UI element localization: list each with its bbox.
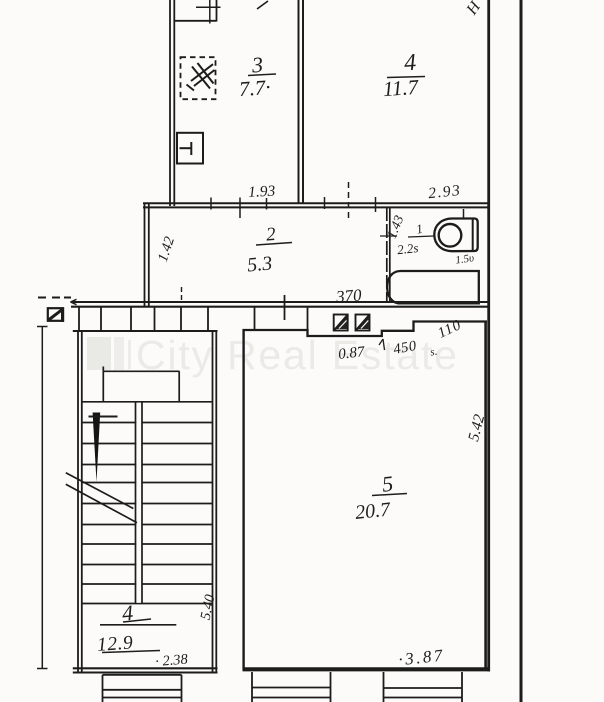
svg-text:11.7: 11.7	[382, 75, 420, 102]
svg-text:2.2ѕ: 2.2ѕ	[396, 240, 419, 257]
svg-text:2.93: 2.93	[427, 182, 462, 202]
svg-text:370: 370	[334, 285, 363, 306]
svg-text:1.93: 1.93	[248, 183, 276, 201]
svg-text:4: 4	[403, 50, 417, 77]
svg-text:0.87: 0.87	[337, 344, 366, 363]
svg-text:7.7·: 7.7·	[238, 75, 271, 101]
svg-text:3: 3	[250, 52, 264, 78]
svg-text:· 2.38: · 2.38	[155, 651, 190, 670]
svg-text:5.3: 5.3	[246, 252, 273, 276]
svg-text:20.7: 20.7	[354, 498, 392, 524]
